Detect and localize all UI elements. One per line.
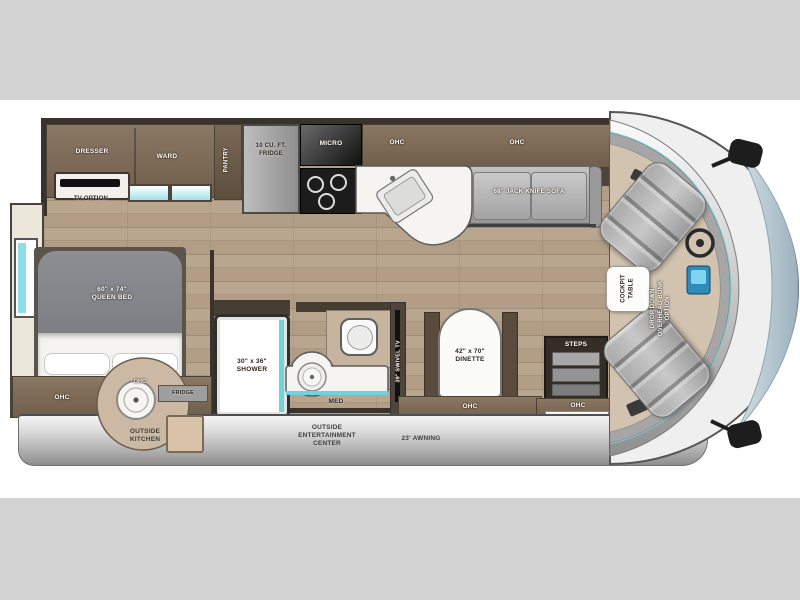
pantry-label: PANTRY — [223, 125, 231, 195]
outside-kitchen-label: OUTSIDE KITCHEN — [103, 428, 187, 444]
steps-label: STEPS — [546, 341, 606, 349]
dash-screen-glow — [691, 270, 706, 284]
swivel-tv-label: 39" SWIVEL TV — [396, 321, 403, 401]
dresser-label: DRESSER — [50, 148, 134, 156]
outside-fridge-label: FRIDGE — [158, 390, 208, 397]
bunk-option-label: DROP DOWN OVERHEAD BUNK OPTION — [650, 238, 673, 378]
ward-label: WARD — [130, 153, 204, 161]
ohc-bedroom-label: OHC — [40, 394, 84, 402]
vanity-drain — [310, 375, 314, 379]
med-label: MED — [318, 398, 354, 406]
rv-floorplan: DRESSER WARD PANTRY TV OPTION 10 CU. FT.… — [0, 0, 800, 600]
sofa-label: 68" JACK KNIFE SOFA — [462, 188, 596, 196]
cockpit-table-label: COCKPIT TABLE — [621, 259, 636, 319]
ohc-sofa-label: OHC — [500, 139, 534, 147]
micro-label: MICRO — [300, 140, 362, 148]
outside-kitchen-burner-dot — [133, 397, 138, 402]
dinette-label: 42" x 70" DINETTE — [438, 348, 502, 364]
queen-bed-label: 60" x 74" QUEEN BED — [52, 286, 172, 302]
ohc-outside-kitchen-label: OHC — [122, 379, 158, 386]
fridge-10cf-label: 10 CU. FT. FRIDGE — [240, 143, 302, 158]
ohc-entry-label: OHC — [560, 402, 596, 410]
vanity-teal-edge — [286, 391, 388, 395]
entertainment-center-label: OUTSIDE ENTERTAINMENT CENTER — [278, 424, 376, 448]
steering-hub — [696, 239, 704, 247]
ohc-galley-label: OHC — [380, 139, 414, 147]
shower-label: 30" x 36" SHOWER — [216, 358, 288, 374]
ohc-dinette-label: OHC — [452, 403, 488, 411]
awning-label: 23' AWNING — [390, 435, 452, 443]
tv-option-label: TV OPTION — [52, 196, 130, 204]
